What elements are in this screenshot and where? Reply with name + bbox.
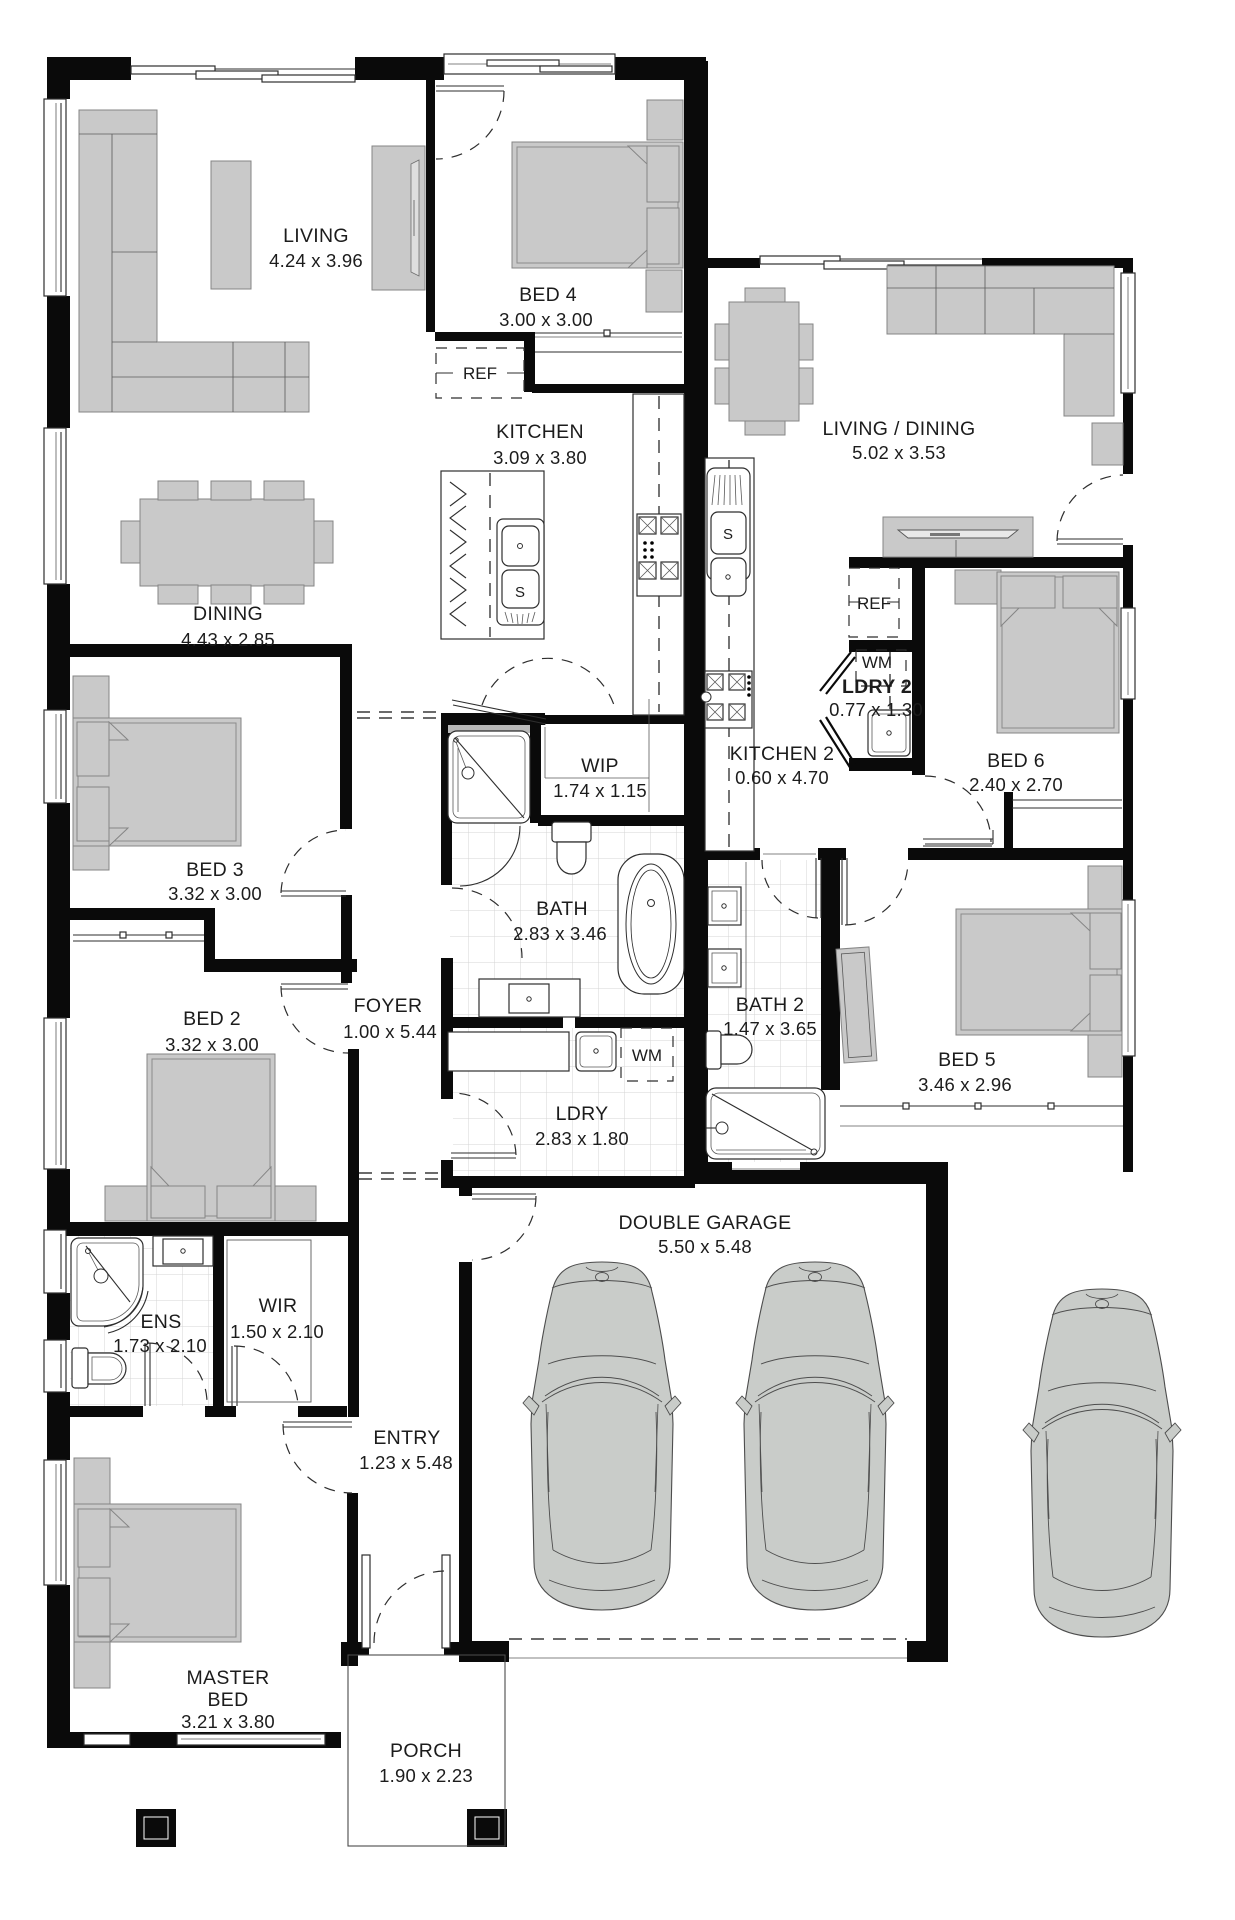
svg-text:1.74 x 1.15: 1.74 x 1.15: [553, 780, 647, 801]
svg-text:3.21 x 3.80: 3.21 x 3.80: [181, 1711, 275, 1732]
svg-text:4.43 x 2.85: 4.43 x 2.85: [181, 629, 275, 650]
svg-text:BED 5: BED 5: [938, 1049, 996, 1071]
svg-text:WM: WM: [862, 653, 892, 672]
svg-text:4.24 x 3.96: 4.24 x 3.96: [269, 250, 363, 271]
svg-text:MASTER: MASTER: [186, 1667, 269, 1689]
svg-text:BED 4: BED 4: [519, 284, 577, 306]
svg-text:1.00 x 5.44: 1.00 x 5.44: [343, 1021, 437, 1042]
svg-text:2.83 x 1.80: 2.83 x 1.80: [535, 1128, 629, 1149]
svg-text:S: S: [515, 584, 525, 601]
svg-text:S: S: [723, 526, 733, 543]
svg-text:REF: REF: [857, 594, 891, 613]
svg-text:1.23 x 5.48: 1.23 x 5.48: [359, 1452, 453, 1473]
svg-text:DOUBLE GARAGE: DOUBLE GARAGE: [619, 1212, 792, 1234]
svg-text:3.32 x 3.00: 3.32 x 3.00: [168, 883, 262, 904]
svg-text:1.50 x 2.10: 1.50 x 2.10: [230, 1321, 324, 1342]
svg-text:3.00 x 3.00: 3.00 x 3.00: [499, 309, 593, 330]
svg-text:BED: BED: [208, 1689, 249, 1711]
svg-text:DINING: DINING: [193, 603, 263, 625]
svg-text:BED 3: BED 3: [186, 859, 244, 881]
svg-text:BED 6: BED 6: [987, 750, 1045, 772]
svg-text:LDRY 2: LDRY 2: [842, 676, 912, 698]
svg-text:WM: WM: [632, 1046, 662, 1065]
svg-text:FOYER: FOYER: [354, 995, 423, 1017]
svg-text:LDRY: LDRY: [556, 1103, 609, 1125]
svg-text:REF: REF: [463, 364, 497, 383]
svg-text:1.73 x 2.10: 1.73 x 2.10: [113, 1335, 207, 1356]
svg-text:2.40 x 2.70: 2.40 x 2.70: [969, 774, 1063, 795]
svg-text:3.09 x 3.80: 3.09 x 3.80: [493, 447, 587, 468]
svg-text:3.32 x 3.00: 3.32 x 3.00: [165, 1034, 259, 1055]
svg-text:BATH: BATH: [536, 898, 588, 920]
svg-text:LIVING: LIVING: [283, 225, 349, 247]
svg-text:3.46 x 2.96: 3.46 x 2.96: [918, 1074, 1012, 1095]
svg-text:WIP: WIP: [581, 755, 619, 777]
svg-text:2.83 x 3.46: 2.83 x 3.46: [513, 923, 607, 944]
svg-text:BATH 2: BATH 2: [736, 994, 805, 1016]
svg-text:0.60 x 4.70: 0.60 x 4.70: [735, 767, 829, 788]
svg-text:ENS: ENS: [141, 1311, 182, 1333]
svg-text:ENTRY: ENTRY: [373, 1427, 440, 1449]
svg-text:0.77 x 1.30: 0.77 x 1.30: [829, 699, 923, 720]
svg-text:KITCHEN 2: KITCHEN 2: [730, 743, 835, 765]
svg-text:LIVING / DINING: LIVING / DINING: [823, 418, 976, 440]
svg-text:BED 2: BED 2: [183, 1008, 241, 1030]
svg-text:5.50 x 5.48: 5.50 x 5.48: [658, 1236, 752, 1257]
svg-text:WIR: WIR: [259, 1295, 298, 1317]
svg-text:5.02 x 3.53: 5.02 x 3.53: [852, 442, 946, 463]
svg-text:1.90 x 2.23: 1.90 x 2.23: [379, 1765, 473, 1786]
svg-text:1.47 x 3.65: 1.47 x 3.65: [723, 1018, 817, 1039]
svg-text:KITCHEN: KITCHEN: [496, 421, 584, 443]
svg-text:PORCH: PORCH: [390, 1740, 462, 1762]
